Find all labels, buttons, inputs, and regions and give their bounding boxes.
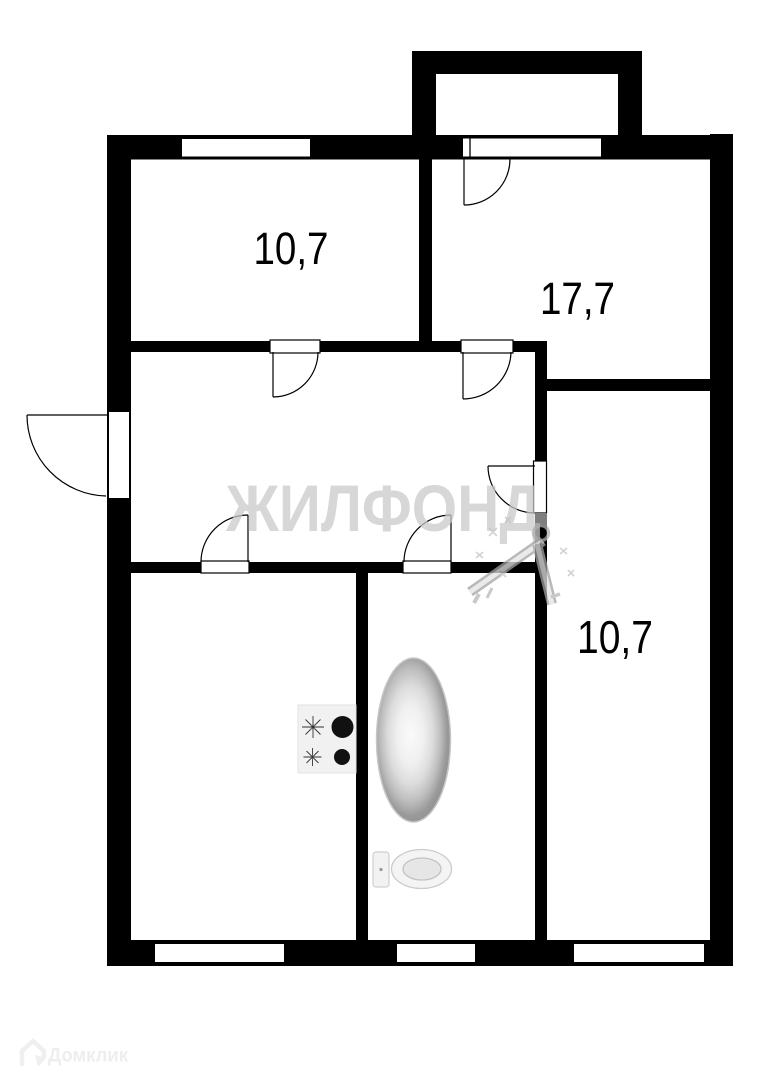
svg-text:17,7: 17,7 (540, 273, 615, 324)
svg-text:ЖИЛФОНД: ЖИЛФОНД (225, 471, 541, 545)
svg-text:10,7: 10,7 (254, 223, 329, 274)
svg-text:Домклик: Домклик (48, 1046, 128, 1067)
svg-text:10,7: 10,7 (577, 611, 653, 663)
